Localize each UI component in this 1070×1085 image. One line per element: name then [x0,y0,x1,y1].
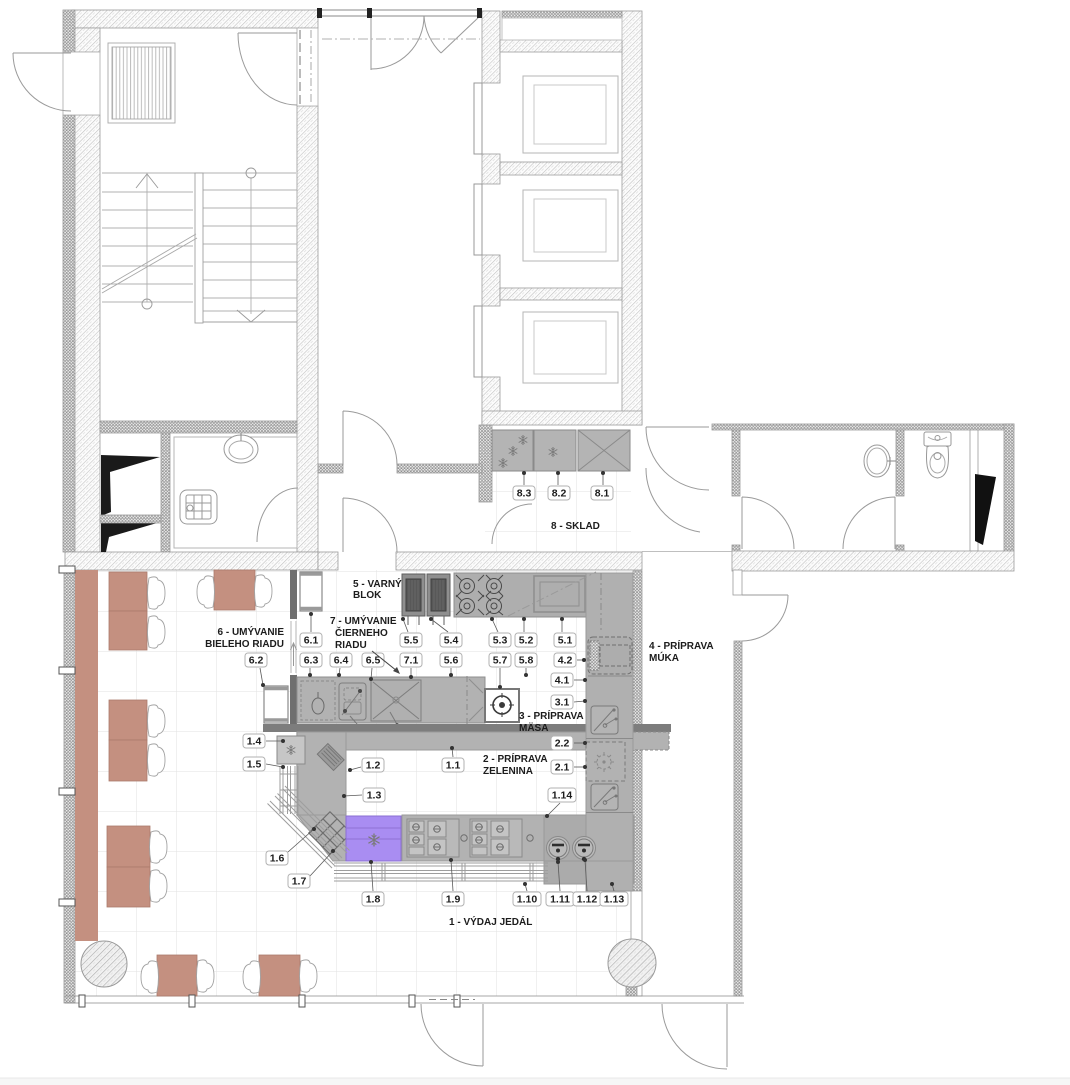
svg-text:8 - SKLAD: 8 - SKLAD [551,521,600,532]
svg-text:6.1: 6.1 [304,635,319,647]
svg-text:4.1: 4.1 [555,675,570,687]
svg-text:1 - VÝDAJ JEDÁL: 1 - VÝDAJ JEDÁL [449,915,532,928]
svg-text:BIELEHO RIADU: BIELEHO RIADU [205,639,284,650]
svg-text:5 - VARNÝ: 5 - VARNÝ [353,577,402,590]
svg-text:BLOK: BLOK [353,590,382,601]
svg-text:MÄSA: MÄSA [519,721,548,734]
svg-text:5.8: 5.8 [519,655,534,667]
svg-text:ZELENINA: ZELENINA [483,766,533,777]
svg-text:6.2: 6.2 [249,655,264,667]
svg-text:1.8: 1.8 [366,894,381,906]
svg-text:3 - PRÍPRAVA: 3 - PRÍPRAVA [519,709,584,722]
svg-text:5.7: 5.7 [493,655,508,667]
svg-text:1.1: 1.1 [446,760,461,772]
svg-text:5.4: 5.4 [444,635,459,647]
svg-text:8.1: 8.1 [595,488,610,500]
svg-text:8.3: 8.3 [517,488,532,500]
svg-text:RIADU: RIADU [335,640,367,651]
svg-text:1.6: 1.6 [270,853,285,865]
svg-text:8.2: 8.2 [552,488,567,500]
svg-text:MÚKA: MÚKA [649,651,679,664]
svg-text:1.14: 1.14 [552,790,573,802]
svg-text:ČIERNEHO: ČIERNEHO [335,626,388,639]
svg-text:1.13: 1.13 [604,894,625,906]
svg-text:5.5: 5.5 [404,635,419,647]
svg-text:3.1: 3.1 [555,697,570,709]
svg-text:1.10: 1.10 [517,894,538,906]
svg-text:6.3: 6.3 [304,655,319,667]
svg-text:2.2: 2.2 [555,738,570,750]
svg-text:1.11: 1.11 [550,894,570,906]
svg-text:7 - UMÝVANIE: 7 - UMÝVANIE [330,614,397,627]
svg-text:5.1: 5.1 [558,635,573,647]
svg-text:1.5: 1.5 [247,759,262,771]
svg-text:4 - PRÍPRAVA: 4 - PRÍPRAVA [649,639,714,652]
svg-text:1.3: 1.3 [367,790,382,802]
svg-text:7.1: 7.1 [404,655,419,667]
svg-text:6 - UMÝVANIE: 6 - UMÝVANIE [218,625,285,638]
svg-text:2.1: 2.1 [555,762,570,774]
svg-text:1.12: 1.12 [577,894,598,906]
svg-text:5.2: 5.2 [519,635,534,647]
svg-text:1.2: 1.2 [366,760,381,772]
svg-text:1.4: 1.4 [247,736,262,748]
svg-text:5.3: 5.3 [493,635,508,647]
svg-text:2 - PRÍPRAVA: 2 - PRÍPRAVA [483,752,548,765]
svg-text:4.2: 4.2 [558,655,573,667]
svg-text:1.9: 1.9 [446,894,461,906]
svg-text:6.4: 6.4 [334,655,349,667]
svg-text:5.6: 5.6 [444,655,459,667]
svg-text:1.7: 1.7 [292,876,307,888]
